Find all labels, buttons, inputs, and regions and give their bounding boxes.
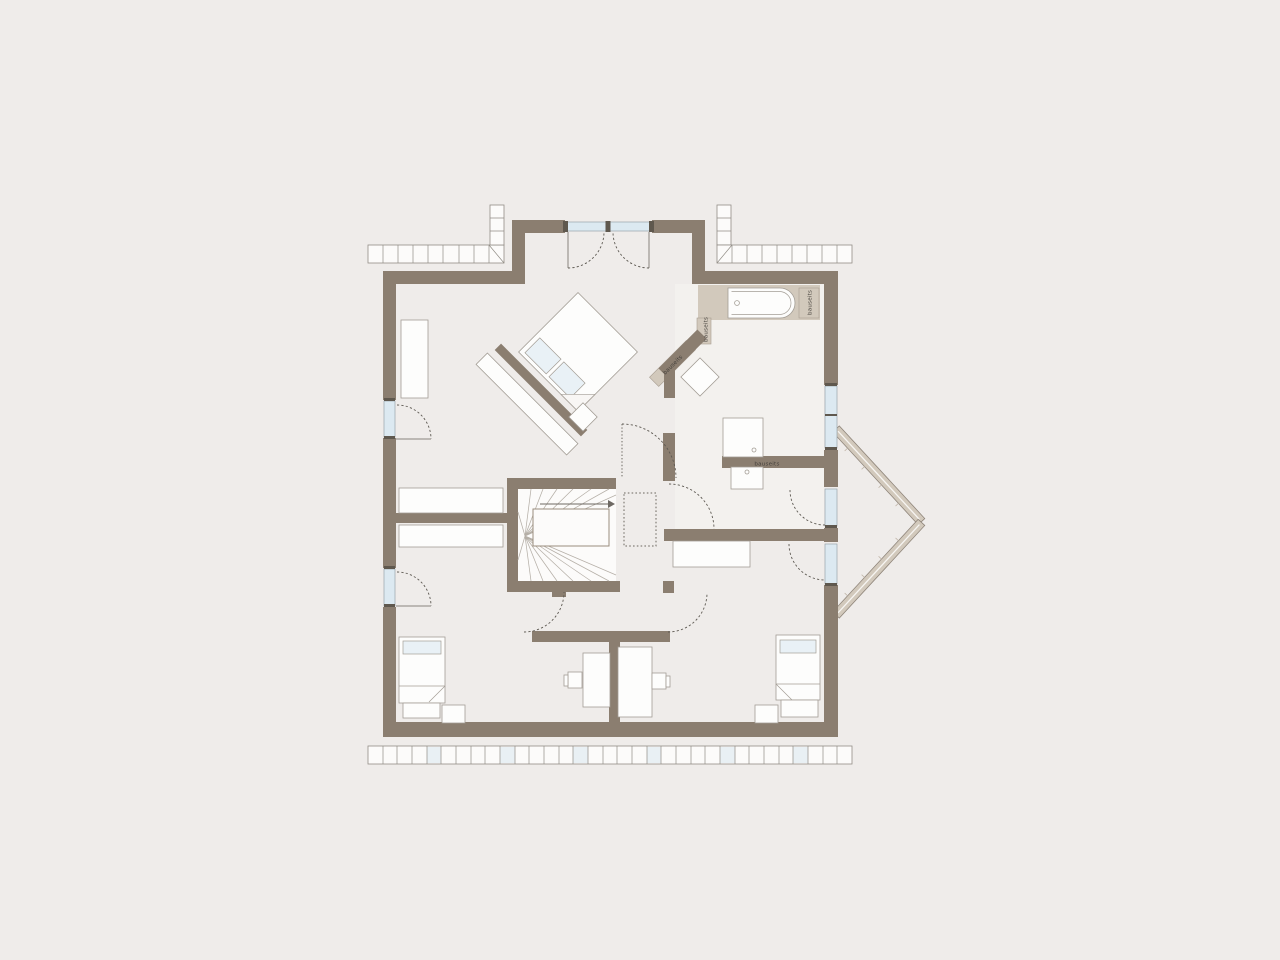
window-right-1 (825, 386, 837, 448)
window-left-2-arc (397, 572, 431, 606)
wall-hall-east-lower (663, 433, 675, 481)
desk-child-left (564, 653, 610, 707)
wall-bump-top-left (512, 220, 565, 233)
washbasin (731, 467, 763, 489)
chair-back (564, 675, 568, 686)
band-top-right (717, 245, 852, 263)
wall-hall-pier (663, 581, 674, 593)
shower (723, 418, 763, 457)
chair-back (666, 676, 670, 687)
entry-door-right-arc (613, 232, 649, 268)
desk-child-right (618, 647, 670, 717)
wall-left-lower (383, 607, 396, 737)
wall-top-right (692, 271, 838, 284)
wall-stair-left (507, 480, 518, 592)
chair-seat (652, 673, 666, 689)
window-right-2-balcony-door (825, 489, 837, 526)
childroom-right-door-arc (668, 593, 707, 632)
window-left-1-arc (397, 405, 431, 439)
childroom-left-door-arc (524, 592, 564, 632)
wall-closet-divider (395, 513, 510, 523)
pointed-bay-roof-lower (830, 517, 925, 618)
window-left-1 (384, 401, 395, 437)
wall-right-lower (824, 585, 838, 722)
closet-south (399, 525, 503, 547)
wall-bottom (383, 722, 838, 737)
closet-north (399, 488, 503, 513)
foot-cabinet (781, 700, 818, 717)
bed-child-right (755, 635, 820, 723)
wall-right-pier-2 (824, 528, 838, 542)
wall-top-left (383, 271, 525, 284)
bauseits-label-tub-left: bauseits (704, 317, 710, 342)
wall-stair-top (507, 478, 616, 489)
bed-master (519, 293, 638, 412)
band-top-left (368, 245, 504, 263)
childroom-right-balcony-door-arc (789, 544, 825, 580)
wall-childrooms-top (532, 631, 670, 642)
wardrobe-master-left (401, 320, 428, 398)
chimney-dashed-outline (624, 493, 656, 546)
wall-left-upper (383, 271, 396, 400)
wall-left-middle (383, 438, 396, 568)
floor-plan-canvas: bauseits bauseits bauseits bauseits (0, 0, 1280, 960)
pillow (403, 641, 441, 654)
stair-handrail (533, 509, 609, 546)
side-cabinet (755, 705, 778, 723)
pillow (780, 640, 816, 653)
band-top-left-vertical (490, 205, 504, 245)
band-top-right-vertical (717, 205, 731, 245)
bauseits-label-basin: bauseits (754, 462, 779, 468)
chair-seat (568, 672, 582, 688)
foot-cabinet (403, 703, 440, 718)
floor-plan: bauseits bauseits bauseits bauseits (0, 0, 1280, 960)
sideboard-childroom-right (673, 541, 750, 567)
wall-bath-childroom (664, 529, 824, 541)
side-cabinet (442, 705, 465, 723)
bathtub (728, 288, 795, 318)
window-right-3-balcony-door (825, 544, 837, 584)
pointed-bay (830, 426, 925, 618)
wall-right-upper (824, 284, 838, 385)
pointed-bay-roof-upper (830, 426, 925, 527)
window-left-2 (384, 569, 395, 606)
entry-door-left-arc (568, 232, 604, 268)
wall-right-pier-1 (824, 450, 838, 487)
bed-child-left (399, 637, 465, 723)
bauseits-label-tub-right: bauseits (808, 290, 814, 315)
